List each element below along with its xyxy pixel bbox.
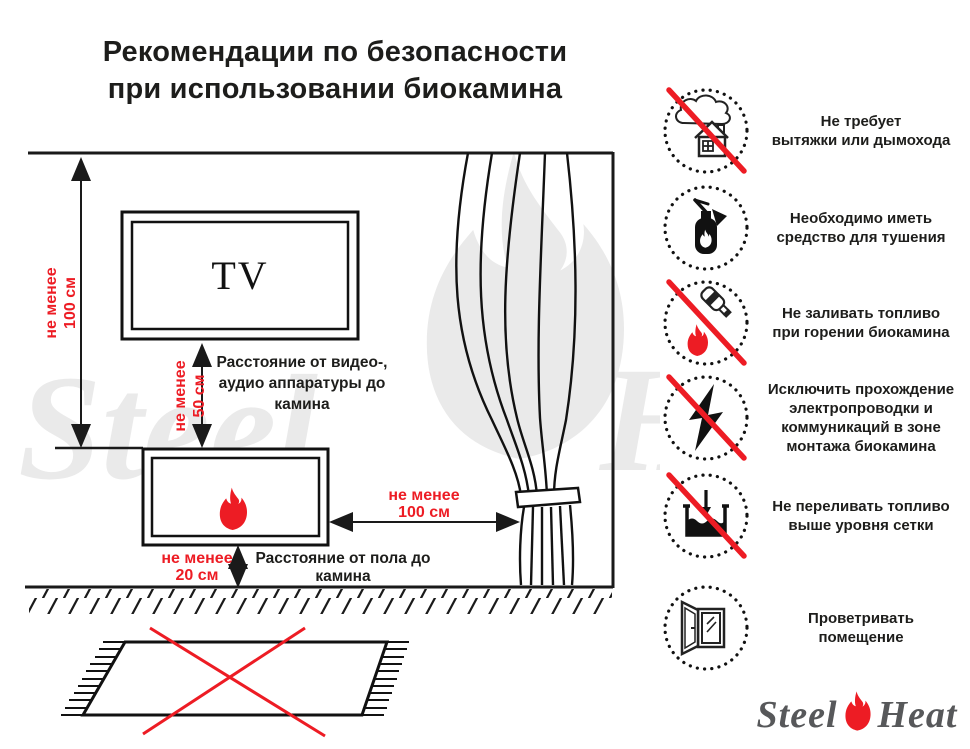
rule-ventilate: Проветривать помещение [660,582,962,674]
brand-flame-icon [841,689,875,733]
no-overfill-icon [660,470,752,562]
av-distance-caption: Расстояние от видео-, аудио аппаратуры д… [207,352,397,415]
brand-logo: Steel Heat [748,686,966,744]
safety-poster: Рекомендации по безопасности при использ… [0,0,970,749]
brand-logo-steel: Steel [757,693,838,737]
rule-label: Необходимо иметь средство для тушения [760,209,962,247]
floor-distance-label: не менее 20 см [147,550,247,584]
curtain-tie [516,488,580,507]
rule-label: Не переливать топливо выше уровня сетки [760,497,962,535]
rule-label: Не заливать топливо при горении биокамин… [760,304,962,342]
carpet [61,628,409,736]
watermark-heat-text: Heat [598,337,660,503]
floor-hatching [29,589,612,614]
rule-label: Проветривать помещение [760,609,962,647]
ventilate-window-icon [660,582,752,674]
rule-no-chimney: Не требует вытяжки или дымохода [660,85,962,177]
extinguisher-icon [660,182,752,274]
tv-distance-label: не менее 50 см [171,346,209,446]
watermark-flame-icon [427,152,624,459]
rule-extinguisher: Необходимо иметь средство для тушения [660,182,962,274]
prohibition-slash [669,475,744,556]
curtain-distance-label: не менее 100 см [364,487,484,521]
prohibition-slash [669,377,744,458]
rule-label: Не требует вытяжки или дымохода [760,112,962,150]
rule-label: Исключить прохождение электропроводки и … [760,380,962,456]
brand-logo-heat: Heat [878,693,958,737]
rule-no-electrical-wiring: Исключить прохождение электропроводки и … [660,372,962,464]
biofireplace [143,449,328,545]
rule-no-refuel-while-burning: Не заливать топливо при горении биокамин… [660,277,962,369]
no-refuel-while-burning-icon [660,277,752,369]
floor-distance-caption: Расстояние от пола до камина [248,550,438,586]
tv-screen-label: TV [122,212,358,339]
rule-no-overfill: Не переливать топливо выше уровня сетки [660,470,962,562]
wall-distance-label: не менее 100 см [42,248,80,358]
no-electrical-wiring-icon [660,372,752,464]
no-chimney-icon [660,85,752,177]
